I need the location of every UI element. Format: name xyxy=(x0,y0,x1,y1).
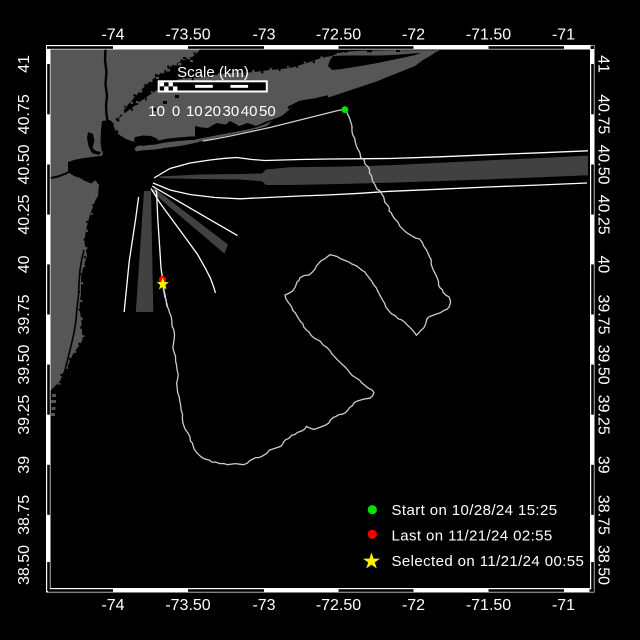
svg-text:38.50: 38.50 xyxy=(595,545,612,585)
svg-text:40.75: 40.75 xyxy=(595,94,612,134)
svg-text:-71.50: -71.50 xyxy=(466,27,511,44)
svg-text:30: 30 xyxy=(223,103,240,120)
svg-text:-73.50: -73.50 xyxy=(165,597,210,614)
svg-text:Start on 10/28/24 15:25: Start on 10/28/24 15:25 xyxy=(392,502,558,519)
svg-text:40.25: 40.25 xyxy=(16,194,33,234)
svg-text:-72.50: -72.50 xyxy=(316,597,361,614)
svg-text:Scale (km): Scale (km) xyxy=(177,64,249,81)
svg-text:-71.50: -71.50 xyxy=(466,597,511,614)
svg-text:40.50: 40.50 xyxy=(595,144,612,184)
svg-text:-71: -71 xyxy=(552,597,575,614)
svg-text:40.25: 40.25 xyxy=(595,195,612,235)
svg-text:20: 20 xyxy=(204,103,221,120)
svg-text:39: 39 xyxy=(595,456,612,474)
svg-text:39.75: 39.75 xyxy=(16,294,33,334)
svg-text:10: 10 xyxy=(186,103,203,120)
svg-text:41: 41 xyxy=(16,55,33,73)
svg-text:0: 0 xyxy=(172,103,180,120)
svg-text:39: 39 xyxy=(16,456,33,474)
svg-text:Selected on 11/21/24 00:55: Selected on 11/21/24 00:55 xyxy=(392,553,585,570)
svg-text:38.75: 38.75 xyxy=(595,495,612,535)
svg-text:39.75: 39.75 xyxy=(595,294,612,334)
svg-text:40: 40 xyxy=(595,256,612,274)
svg-text:40.75: 40.75 xyxy=(16,94,33,134)
svg-text:38.50: 38.50 xyxy=(16,545,33,585)
svg-text:-71: -71 xyxy=(552,27,575,44)
svg-text:38.75: 38.75 xyxy=(16,495,33,535)
svg-text:39.25: 39.25 xyxy=(16,395,33,435)
svg-text:40: 40 xyxy=(16,255,33,273)
svg-text:Last on 11/21/24 02:55: Last on 11/21/24 02:55 xyxy=(392,528,553,545)
svg-text:-73: -73 xyxy=(252,597,275,614)
svg-text:39.25: 39.25 xyxy=(595,395,612,435)
svg-text:-72.50: -72.50 xyxy=(316,27,361,44)
svg-text:41: 41 xyxy=(595,55,612,73)
svg-text:50: 50 xyxy=(259,103,276,120)
svg-text:-72: -72 xyxy=(402,597,425,614)
svg-text:-74: -74 xyxy=(101,597,124,614)
svg-text:-73: -73 xyxy=(252,27,275,44)
svg-text:-74: -74 xyxy=(101,27,124,44)
svg-text:-72: -72 xyxy=(402,27,425,44)
svg-text:-73.50: -73.50 xyxy=(165,27,210,44)
svg-text:40.50: 40.50 xyxy=(16,144,33,184)
svg-text:39.50: 39.50 xyxy=(16,344,33,384)
svg-text:40: 40 xyxy=(241,103,258,120)
svg-text:39.50: 39.50 xyxy=(595,345,612,385)
svg-text:10: 10 xyxy=(148,103,165,120)
